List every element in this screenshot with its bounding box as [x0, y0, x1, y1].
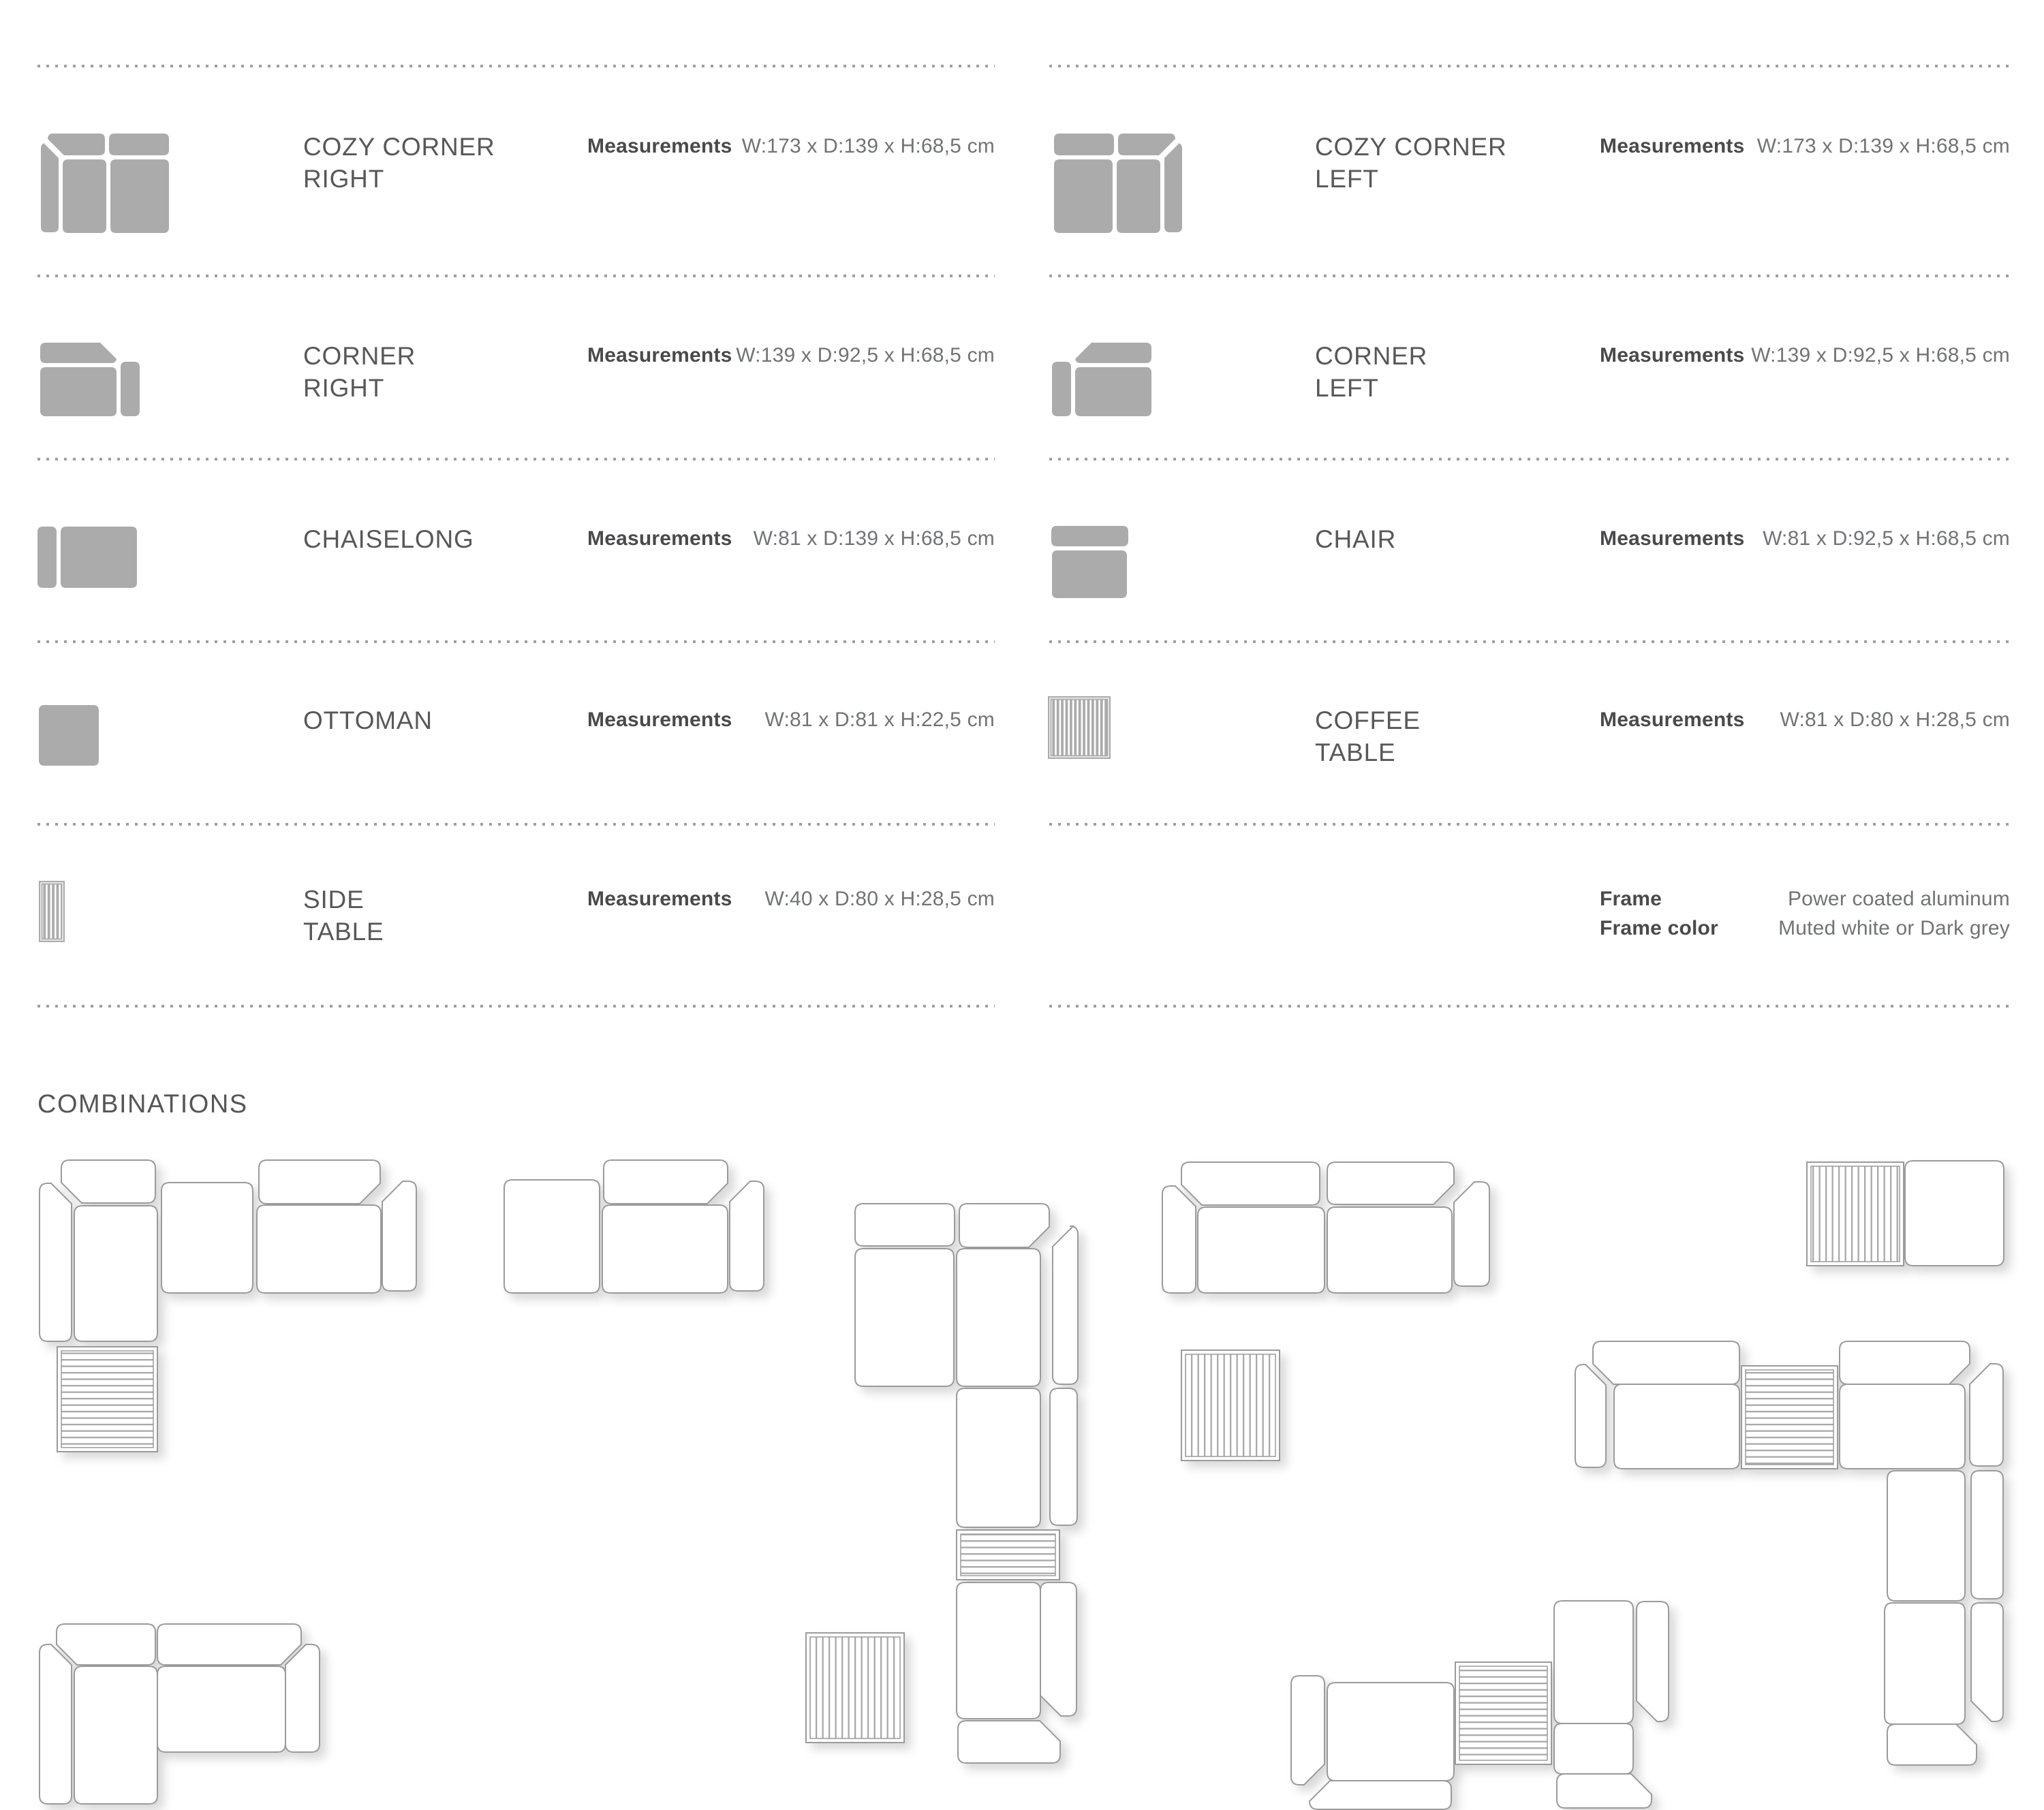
seat-cushion [61, 527, 137, 588]
seat-cushion [1840, 1384, 1965, 1469]
seat-cushion [1327, 1207, 1452, 1293]
back-cushion [958, 1721, 1060, 1763]
dotted-divider [1049, 458, 2010, 461]
dotted-divider [37, 458, 995, 461]
seat-cushion [1614, 1384, 1739, 1469]
seat-cushion [1554, 1723, 1633, 1774]
corner-left-icon [1051, 343, 1153, 416]
seat-cushion [855, 1249, 954, 1386]
back-cushion [1075, 343, 1151, 363]
seat-cushion [504, 1180, 600, 1293]
table-slats [961, 1534, 1055, 1576]
table-slats [1186, 1354, 1275, 1456]
armrest [1454, 1182, 1489, 1286]
product-title: COFFEE TABLE [1315, 704, 1421, 769]
cozy-corner-right-icon [41, 134, 170, 233]
dotted-divider [1049, 823, 2010, 826]
chair-icon [1051, 526, 1130, 598]
back-cushion [604, 1160, 728, 1204]
chaiselong-icon [37, 527, 137, 588]
product-measurements: MeasurementsW:139 x D:92,5 x H:68,5 cm [1600, 344, 2010, 367]
measurements-value: W:139 x D:92,5 x H:68,5 cm [732, 344, 995, 367]
back-cushion [1327, 1162, 1454, 1204]
dotted-divider [37, 823, 995, 826]
back-cushion [157, 1624, 301, 1665]
armrest [40, 1183, 72, 1341]
seat-cushion [957, 1582, 1040, 1719]
combinations-diagrams [0, 1131, 2044, 1810]
back-cushion [1593, 1341, 1739, 1384]
combination-8-diagram [1291, 1601, 1669, 1809]
seat-cushion [1052, 550, 1127, 598]
armrest [1637, 1602, 1669, 1721]
measurements-value: W:81 x D:81 x H:22,5 cm [732, 708, 995, 732]
seat-cushion [157, 1666, 285, 1752]
spec-line: FramePower coated aluminum [1600, 888, 2010, 911]
spec-label: Frame color [1600, 917, 1718, 940]
seat-cushion [1885, 1603, 1965, 1724]
product-title: CHAIR [1315, 523, 1396, 555]
table-slats [42, 884, 62, 939]
seat-cushion [957, 1388, 1040, 1527]
product-measurements: MeasurementsW:173 x D:139 x H:68,5 cm [587, 135, 995, 158]
spec-value: Power coated aluminum [1662, 888, 2010, 911]
armrest [1052, 362, 1071, 416]
measurements-label: Measurements [587, 344, 732, 367]
measurements-value: W:81 x D:80 x H:28,5 cm [1745, 708, 2011, 732]
combination-9-diagram [806, 1633, 904, 1743]
combination-7-diagram [40, 1624, 320, 1804]
armrest [121, 362, 140, 416]
back-cushion [48, 134, 105, 155]
seat-cushion [40, 367, 117, 416]
back-cushion [1310, 1781, 1451, 1809]
measurements-label: Measurements [1600, 527, 1745, 550]
seat-cushion [1198, 1207, 1325, 1293]
back-cushion [1054, 134, 1114, 155]
armrest [41, 143, 59, 232]
armrest [1162, 1186, 1196, 1293]
dotted-divider [37, 640, 995, 643]
seat-cushion [110, 159, 169, 233]
armrest [285, 1644, 320, 1752]
measurements-label: Measurements [1600, 135, 1745, 158]
seat-cushion [1887, 1471, 1965, 1601]
dotted-divider [37, 1005, 995, 1008]
measurements-value: W:139 x D:92,5 x H:68,5 cm [1745, 344, 2011, 367]
table-slats [1051, 700, 1108, 756]
table-slats [1746, 1370, 1833, 1465]
armrest [382, 1181, 416, 1291]
armrest [1050, 1388, 1077, 1525]
armrest [1971, 1471, 2003, 1599]
spec-sheet-page: COMBINATIONS COZY CORNER RIGHTMeasuremen… [0, 0, 2044, 1810]
seat-cushion [1075, 367, 1151, 416]
seat-cushion [63, 159, 106, 233]
combination-1-diagram [40, 1160, 416, 1452]
seat-cushion [74, 1206, 157, 1341]
product-measurements: MeasurementsW:81 x D:81 x H:22,5 cm [587, 708, 995, 732]
spec-value: Muted white or Dark grey [1718, 917, 2010, 940]
cozy-corner-left-icon [1053, 134, 1182, 233]
product-measurements: MeasurementsW:139 x D:92,5 x H:68,5 cm [587, 344, 995, 367]
back-cushion [57, 1624, 155, 1665]
product-measurements: MeasurementsW:81 x D:139 x H:68,5 cm [587, 527, 995, 550]
armrest [1164, 143, 1182, 232]
product-title: CORNER RIGHT [303, 340, 416, 405]
measurements-value: W:173 x D:139 x H:68,5 cm [1745, 135, 2011, 158]
product-measurements: MeasurementsW:40 x D:80 x H:28,5 cm [587, 888, 995, 911]
back-cushion [1051, 526, 1128, 546]
table-slats [810, 1637, 900, 1738]
measurements-value: W:40 x D:80 x H:28,5 cm [732, 888, 995, 911]
measurements-label: Measurements [587, 708, 732, 732]
spec-label: Frame [1600, 888, 1662, 911]
seat-cushion [957, 1249, 1040, 1386]
measurements-label: Measurements [587, 135, 732, 158]
measurements-value: W:81 x D:139 x H:68,5 cm [732, 527, 995, 550]
armrest [1971, 1603, 2003, 1721]
back-cushion [109, 134, 169, 155]
back-cushion [1840, 1341, 1970, 1384]
armrest [37, 527, 57, 588]
seat-cushion [39, 705, 99, 766]
seat-cushion [602, 1205, 728, 1293]
seat-cushion [1327, 1683, 1454, 1781]
back-cushion [1557, 1774, 1652, 1808]
combinations-heading: COMBINATIONS [37, 1090, 248, 1119]
armrest [1291, 1676, 1325, 1785]
dotted-divider [1049, 1005, 2010, 1008]
product-title: CHAISELONG [303, 523, 474, 555]
dotted-divider [1049, 640, 2010, 643]
product-measurements: MeasurementsW:173 x D:139 x H:68,5 cm [1600, 135, 2010, 158]
back-cushion [1181, 1162, 1320, 1205]
product-title: CORNER LEFT [1315, 340, 1427, 405]
measurements-label: Measurements [1600, 708, 1745, 732]
back-cushion [959, 1204, 1049, 1247]
measurements-label: Measurements [1600, 344, 1745, 367]
product-title: COZY CORNER RIGHT [303, 131, 495, 196]
product-title: OTTOMAN [303, 704, 433, 736]
back-cushion [259, 1160, 380, 1204]
seat-cushion [161, 1183, 253, 1293]
back-cushion [1887, 1724, 1977, 1765]
seat-cushion [257, 1205, 381, 1293]
table-slats [1811, 1166, 1900, 1262]
ottoman-icon [39, 705, 99, 766]
armrest [1040, 1582, 1077, 1716]
dotted-divider [37, 65, 995, 67]
side-table-icon [39, 881, 65, 942]
back-cushion [1118, 134, 1175, 155]
combination-4-diagram [1162, 1162, 1489, 1461]
seat-cushion [1117, 159, 1160, 233]
corner-right-icon [39, 343, 141, 416]
product-title: COZY CORNER LEFT [1315, 131, 1507, 196]
dotted-divider [37, 275, 995, 277]
armrest [1053, 1226, 1078, 1384]
back-cushion [61, 1160, 155, 1203]
seat-cushion [74, 1666, 157, 1804]
back-cushion [855, 1204, 955, 1246]
combination-5-diagram [1807, 1161, 2004, 1266]
spec-line: Frame colorMuted white or Dark grey [1600, 917, 2010, 940]
measurements-value: W:173 x D:139 x H:68,5 cm [732, 135, 995, 158]
measurements-label: Measurements [587, 888, 732, 911]
frame-specs: FramePower coated aluminumFrame colorMut… [1600, 888, 2010, 940]
coffee-table-icon [1048, 696, 1111, 759]
back-cushion [40, 343, 117, 363]
seat-cushion [1554, 1601, 1633, 1723]
armrest [1970, 1364, 2003, 1466]
product-measurements: MeasurementsW:81 x D:80 x H:28,5 cm [1600, 708, 2010, 732]
measurements-value: W:81 x D:92,5 x H:68,5 cm [1745, 527, 2011, 550]
seat-cushion [1054, 159, 1113, 233]
product-measurements: MeasurementsW:81 x D:92,5 x H:68,5 cm [1600, 527, 2010, 550]
armrest [40, 1644, 72, 1804]
table-slats [1459, 1666, 1547, 1760]
dotted-divider [1049, 275, 2010, 277]
measurements-label: Measurements [587, 527, 732, 550]
product-title: SIDE TABLE [303, 884, 384, 948]
table-slats [61, 1351, 153, 1448]
combination-2-diagram [504, 1160, 764, 1293]
dotted-divider [1049, 65, 2010, 67]
armrest [1575, 1364, 1606, 1467]
armrest [730, 1181, 764, 1291]
seat-cushion [1905, 1161, 2004, 1266]
